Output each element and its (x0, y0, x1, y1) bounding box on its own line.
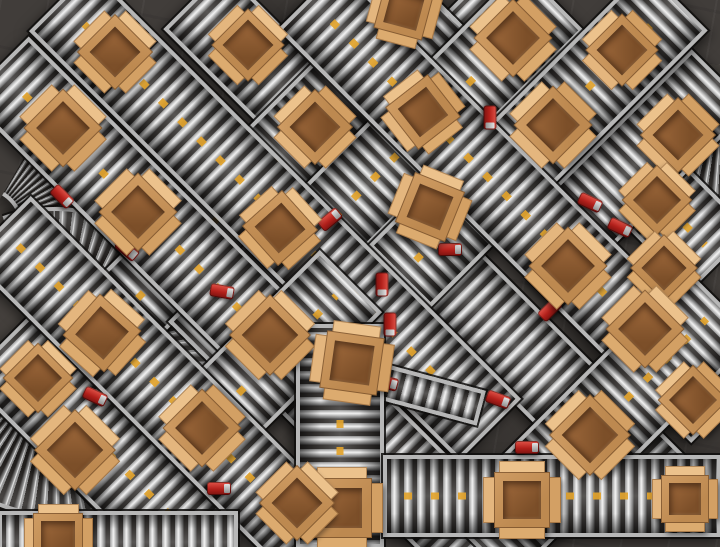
transfer-motor (484, 106, 497, 130)
box-flap (82, 518, 93, 547)
box-flap (549, 477, 561, 523)
cardboard-box (33, 513, 83, 547)
cardboard-box (385, 74, 461, 150)
cardboard-box (319, 330, 385, 396)
box-flap (708, 479, 718, 518)
transfer-motor (438, 243, 462, 256)
transfer-motor (207, 482, 231, 495)
box-flap (317, 537, 366, 547)
box-flap (499, 527, 545, 539)
cardboard-box (494, 472, 550, 528)
box-opening (669, 483, 702, 516)
transfer-motor (515, 441, 539, 454)
cardboard-box (395, 172, 465, 242)
box-opening (41, 521, 75, 547)
cardboard-box (661, 475, 709, 523)
box-opening (503, 481, 541, 519)
warehouse-photo (0, 0, 720, 547)
transfer-motor (384, 313, 397, 337)
transfer-motor (376, 273, 389, 297)
box-flap (371, 483, 384, 532)
box-flap (665, 522, 704, 532)
box-opening (330, 341, 375, 386)
cardboard-box (373, 0, 434, 41)
